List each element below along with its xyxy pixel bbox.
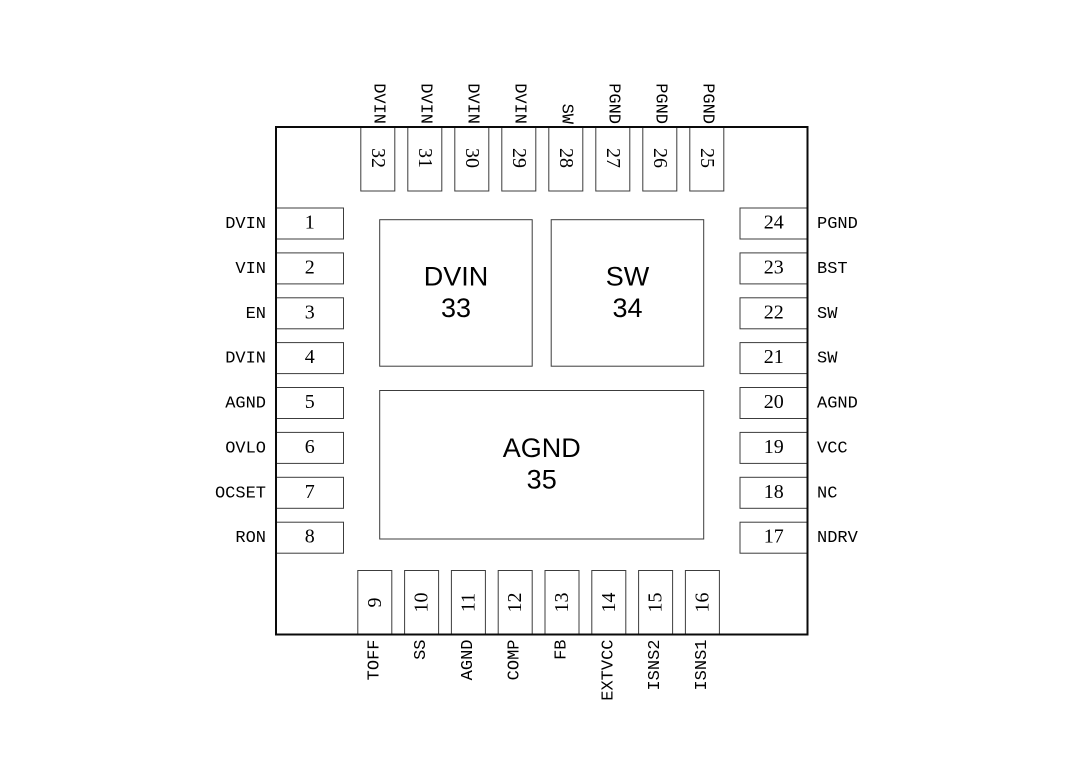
svg-text:7: 7 bbox=[305, 481, 315, 503]
svg-text:DVIN: DVIN bbox=[415, 83, 434, 124]
svg-text:TOFF: TOFF bbox=[365, 640, 384, 681]
svg-text:VIN: VIN bbox=[235, 260, 266, 279]
svg-text:30: 30 bbox=[461, 148, 483, 168]
svg-text:4: 4 bbox=[305, 346, 315, 368]
svg-text:2: 2 bbox=[305, 256, 315, 278]
svg-text:ISNS1: ISNS1 bbox=[693, 640, 712, 691]
svg-text:BST: BST bbox=[817, 260, 848, 279]
svg-text:SW: SW bbox=[817, 305, 838, 324]
svg-text:35: 35 bbox=[527, 465, 557, 495]
svg-text:EN: EN bbox=[246, 305, 266, 324]
svg-text:DVIN: DVIN bbox=[368, 83, 387, 124]
svg-text:PGND: PGND bbox=[817, 215, 858, 234]
svg-text:6: 6 bbox=[305, 436, 315, 458]
svg-text:DVIN: DVIN bbox=[462, 83, 481, 124]
svg-text:PGND: PGND bbox=[697, 83, 716, 124]
svg-text:SW: SW bbox=[606, 262, 650, 292]
svg-text:8: 8 bbox=[305, 526, 315, 548]
svg-text:DVIN: DVIN bbox=[225, 215, 266, 234]
svg-text:20: 20 bbox=[764, 391, 784, 413]
svg-text:10: 10 bbox=[411, 593, 433, 613]
svg-text:PGND: PGND bbox=[603, 83, 622, 124]
svg-text:15: 15 bbox=[645, 593, 667, 613]
svg-text:27: 27 bbox=[602, 148, 624, 168]
svg-text:14: 14 bbox=[598, 593, 620, 613]
svg-text:16: 16 bbox=[691, 593, 713, 613]
svg-text:PGND: PGND bbox=[650, 83, 669, 124]
svg-text:FB: FB bbox=[553, 640, 572, 660]
svg-text:ISNS2: ISNS2 bbox=[646, 640, 665, 691]
svg-text:18: 18 bbox=[764, 481, 784, 503]
svg-text:22: 22 bbox=[764, 301, 784, 323]
svg-text:24: 24 bbox=[764, 212, 784, 234]
svg-text:SW: SW bbox=[556, 104, 575, 125]
svg-text:1: 1 bbox=[305, 212, 315, 234]
svg-text:23: 23 bbox=[764, 256, 784, 278]
svg-text:DVIN: DVIN bbox=[509, 83, 528, 124]
svg-text:3: 3 bbox=[305, 301, 315, 323]
svg-text:OVLO: OVLO bbox=[225, 439, 266, 458]
svg-text:25: 25 bbox=[696, 148, 718, 168]
svg-text:33: 33 bbox=[441, 293, 471, 323]
svg-text:EXTVCC: EXTVCC bbox=[599, 640, 618, 701]
svg-text:SS: SS bbox=[412, 640, 431, 660]
svg-text:5: 5 bbox=[305, 391, 315, 413]
svg-text:26: 26 bbox=[649, 148, 671, 168]
svg-text:DVIN: DVIN bbox=[424, 262, 489, 292]
svg-text:NDRV: NDRV bbox=[817, 529, 859, 548]
svg-text:28: 28 bbox=[555, 148, 577, 168]
svg-text:SW: SW bbox=[817, 350, 838, 369]
svg-text:32: 32 bbox=[367, 148, 389, 168]
svg-text:11: 11 bbox=[457, 593, 479, 612]
svg-text:AGND: AGND bbox=[225, 395, 266, 414]
svg-text:17: 17 bbox=[764, 526, 784, 548]
svg-text:19: 19 bbox=[764, 436, 784, 458]
svg-text:VCC: VCC bbox=[817, 439, 848, 458]
svg-text:COMP: COMP bbox=[506, 640, 525, 681]
svg-text:29: 29 bbox=[508, 148, 530, 168]
svg-text:34: 34 bbox=[612, 293, 642, 323]
svg-text:OCSET: OCSET bbox=[215, 484, 266, 503]
svg-text:DVIN: DVIN bbox=[225, 350, 266, 369]
svg-text:13: 13 bbox=[551, 593, 573, 613]
svg-text:AGND: AGND bbox=[503, 433, 581, 463]
svg-text:12: 12 bbox=[504, 593, 526, 613]
svg-text:31: 31 bbox=[414, 148, 436, 168]
svg-text:9: 9 bbox=[364, 598, 386, 608]
svg-text:NC: NC bbox=[817, 484, 837, 503]
svg-text:21: 21 bbox=[764, 346, 784, 368]
svg-text:AGND: AGND bbox=[459, 640, 478, 681]
svg-text:AGND: AGND bbox=[817, 395, 858, 414]
svg-text:RON: RON bbox=[235, 529, 266, 548]
